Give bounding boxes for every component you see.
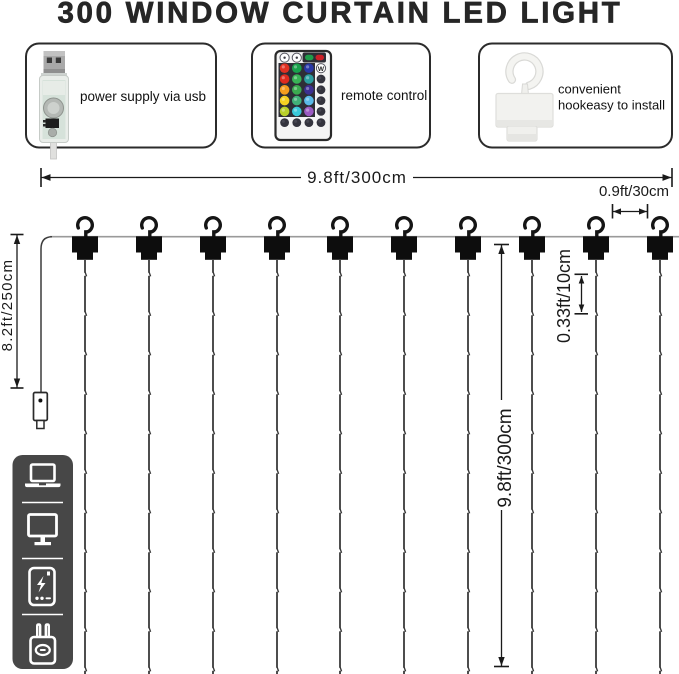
svg-text:300 WINDOW CURTAIN LED LIGHT: 300 WINDOW CURTAIN LED LIGHT <box>57 0 622 30</box>
svg-text:convenient: convenient <box>558 82 621 97</box>
svg-text:8.2ft/250cm: 8.2ft/250cm <box>0 259 16 352</box>
svg-text:remote control: remote control <box>341 88 427 103</box>
svg-text:W: W <box>318 66 325 73</box>
svg-text:0.33ft/10cm: 0.33ft/10cm <box>554 249 574 343</box>
svg-text:9.8ft/300cm: 9.8ft/300cm <box>495 408 516 507</box>
svg-text:9.8ft/300cm: 9.8ft/300cm <box>307 168 407 187</box>
svg-text:power supply via usb: power supply via usb <box>80 89 206 104</box>
svg-text:0.9ft/30cm: 0.9ft/30cm <box>599 183 669 200</box>
svg-text:hookeasy to install: hookeasy to install <box>558 98 665 113</box>
